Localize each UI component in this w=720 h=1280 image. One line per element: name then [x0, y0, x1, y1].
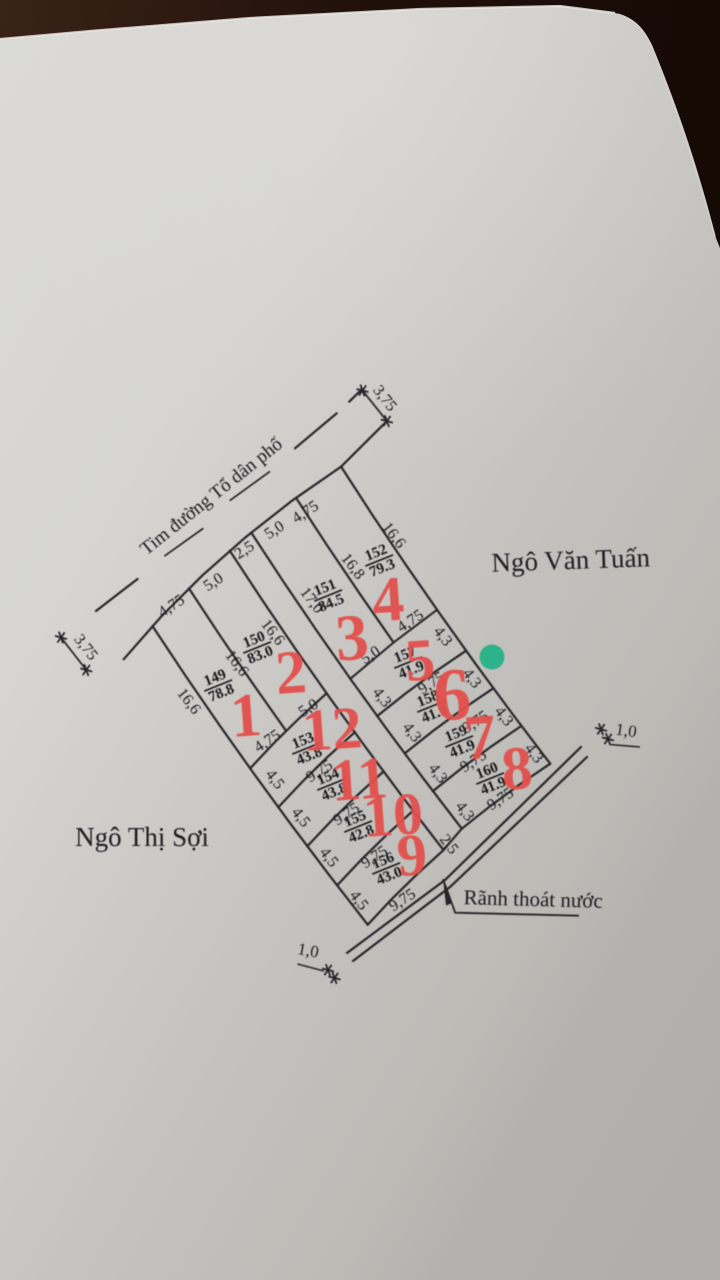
svg-text:Rãnh thoát nước: Rãnh thoát nước	[463, 885, 603, 913]
svg-text:1,0: 1,0	[614, 720, 638, 742]
svg-text:1,0: 1,0	[296, 939, 320, 961]
svg-text:12: 12	[300, 694, 364, 764]
svg-text:Ngô Thị Sợi: Ngô Thị Sợi	[75, 822, 209, 852]
svg-text:8: 8	[499, 734, 535, 804]
svg-text:4: 4	[370, 562, 407, 635]
svg-text:7: 7	[462, 700, 499, 773]
svg-text:3: 3	[333, 600, 371, 675]
svg-text:Ngô Văn Tuấn: Ngô Văn Tuấn	[491, 542, 651, 578]
svg-text:1: 1	[228, 681, 264, 751]
